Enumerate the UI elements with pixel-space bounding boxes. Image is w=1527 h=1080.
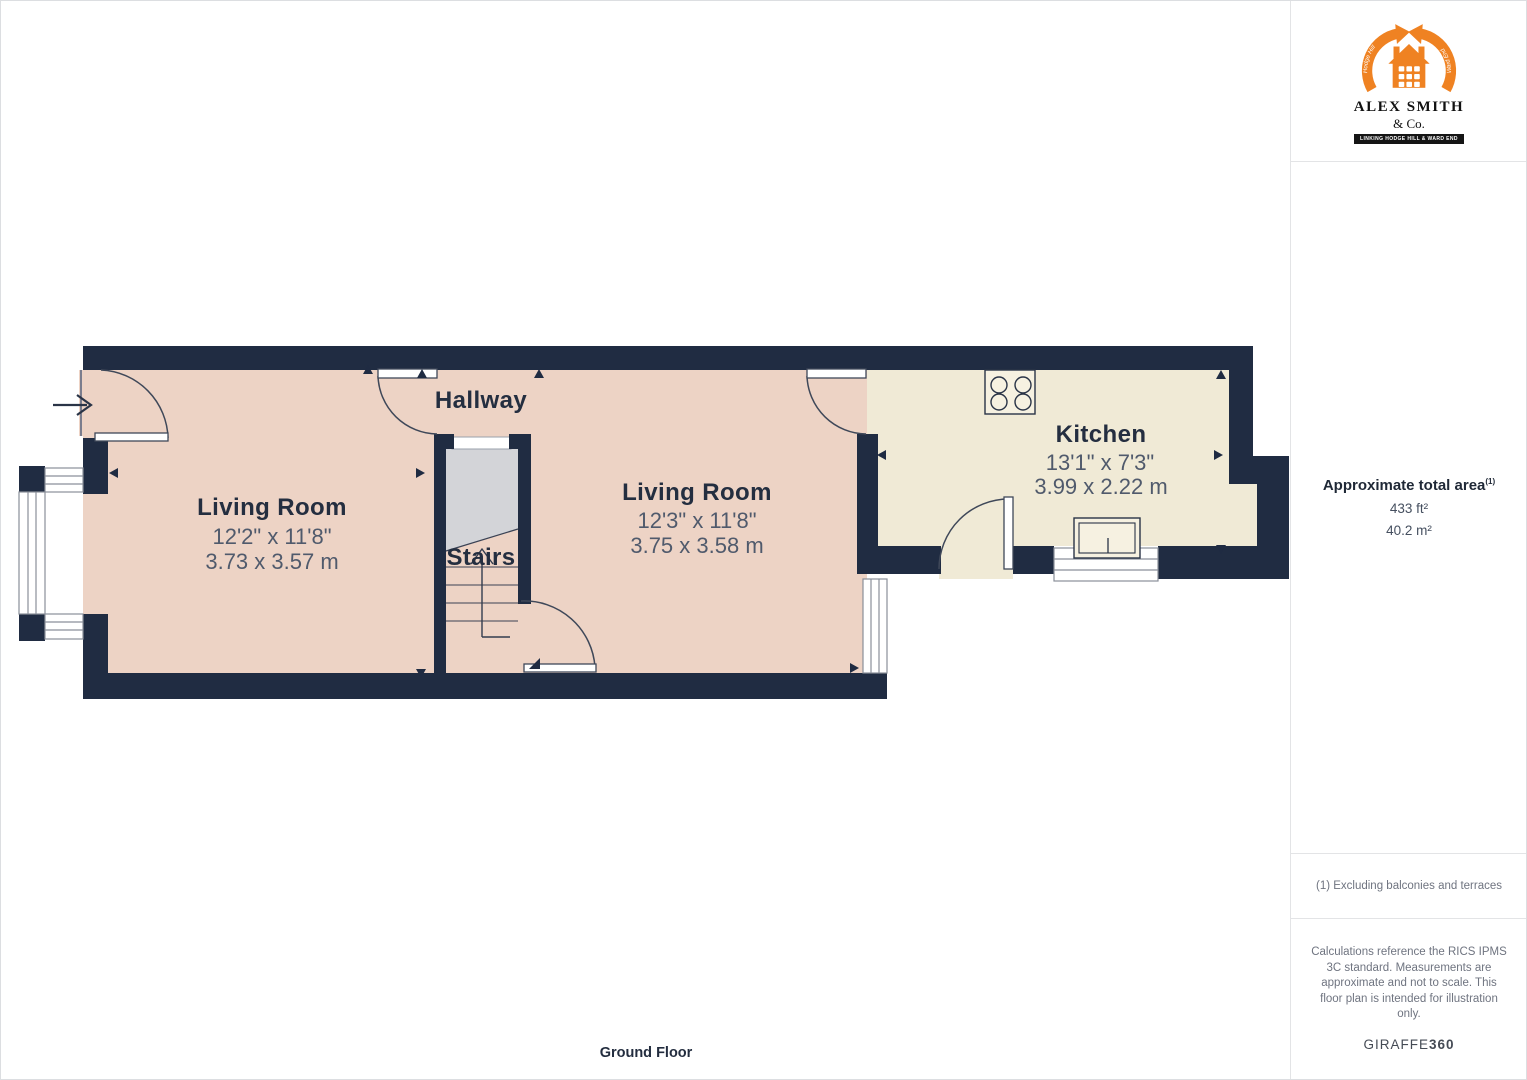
room-dims-m-kitchen: 3.99 x 2.22 m	[1034, 474, 1167, 499]
wall-stairs-post-right	[509, 434, 523, 449]
bay-post-top	[19, 466, 45, 492]
giraffe360-brand: GIRAFFE360	[1363, 1037, 1454, 1052]
room-label-living2: Living Room	[622, 479, 772, 506]
floorplan-page: Living Room 12'2" x 11'8" 3.73 x 3.57 m …	[0, 0, 1527, 1080]
room-dims-ft-kitchen: 13'1" x 7'3"	[1046, 450, 1154, 475]
wall-left-lower	[83, 614, 108, 674]
total-area-section: Approximate total area(1) 433 ft² 40.2 m…	[1291, 162, 1527, 854]
wall-top	[83, 346, 1253, 370]
agency-logo: Hodge Hill Ward End ALEX SM	[1291, 1, 1527, 162]
info-sidebar: Hodge Hill Ward End ALEX SM	[1290, 1, 1527, 1080]
wall-bottom	[83, 673, 887, 699]
disclaimer-section: Calculations reference the RICS IPMS 3C …	[1291, 919, 1527, 1080]
total-area-sqft: 433 ft²	[1390, 501, 1428, 516]
wall-left-upper	[83, 438, 108, 494]
footnote-marker: (1)	[1485, 477, 1495, 486]
agency-logo-icon: Hodge Hill Ward End	[1357, 19, 1461, 105]
logo-house-icon	[1388, 43, 1429, 87]
agency-name-suffix: & Co.	[1393, 116, 1425, 132]
bay-window-bottom	[45, 614, 83, 639]
bay-window-left	[19, 492, 45, 614]
floor-title: Ground Floor	[1, 1045, 1291, 1061]
total-area-title: Approximate total area(1)	[1323, 477, 1495, 494]
kitchen-door-leaf	[807, 369, 866, 378]
stairs-landing	[452, 437, 511, 449]
total-area-title-text: Approximate total area	[1323, 477, 1486, 494]
wall-stairs-post-left	[444, 434, 454, 449]
floorplan-drawing: Living Room 12'2" x 11'8" 3.73 x 3.57 m …	[1, 1, 1291, 1080]
room-dims-m-living1: 3.73 x 3.57 m	[205, 549, 338, 574]
wall-kitchen-bottom-left	[857, 546, 941, 574]
brand-giraffe: GIRAFFE	[1363, 1037, 1429, 1052]
footnote-text: (1) Excluding balconies and terraces	[1316, 880, 1502, 892]
bay-window-top	[45, 468, 83, 492]
sink-icon	[1074, 518, 1140, 558]
total-area-sqm: 40.2 m²	[1386, 523, 1432, 538]
wall-kitchen-right	[1229, 346, 1253, 484]
agency-banner: LINKING HODGE HILL & WARD END	[1354, 134, 1464, 144]
footnote-section: (1) Excluding balconies and terraces	[1291, 854, 1527, 919]
wall-kitchen-bottom-mid	[1013, 546, 1054, 574]
wall-alcove-right	[1257, 484, 1289, 579]
room-label-living1: Living Room	[197, 494, 347, 521]
logo-arrowhead-left-icon	[1395, 24, 1410, 44]
wall-kitchen-left	[857, 434, 878, 546]
logo-arrowhead-right-icon	[1408, 24, 1423, 44]
room-label-kitchen: Kitchen	[1056, 421, 1147, 448]
brand-360: 360	[1429, 1037, 1455, 1052]
living2-right-window	[863, 579, 887, 673]
room-label-stairs: Stairs	[446, 544, 515, 571]
bay-post-bottom	[19, 614, 45, 641]
agency-name: ALEX SMITH	[1354, 99, 1464, 116]
room-dims-ft-living2: 12'3" x 11'8"	[637, 508, 756, 533]
wall-stairs-left	[434, 434, 446, 673]
wall-stairs-right	[518, 434, 531, 604]
wall-alcove-top	[1253, 456, 1289, 484]
disclaimer-text: Calculations reference the RICS IPMS 3C …	[1309, 945, 1509, 1023]
front-door-leaf	[95, 433, 168, 441]
hallway-door-leaf	[378, 369, 437, 378]
rear-door-gap-floor	[939, 546, 1013, 579]
room-label-hallway: Hallway	[435, 387, 527, 414]
room-dims-m-living2: 3.75 x 3.58 m	[630, 533, 763, 558]
front-door-gap-floor	[79, 370, 108, 436]
room-dims-ft-living1: 12'2" x 11'8"	[212, 524, 331, 549]
rear-door-leaf	[1004, 497, 1013, 569]
